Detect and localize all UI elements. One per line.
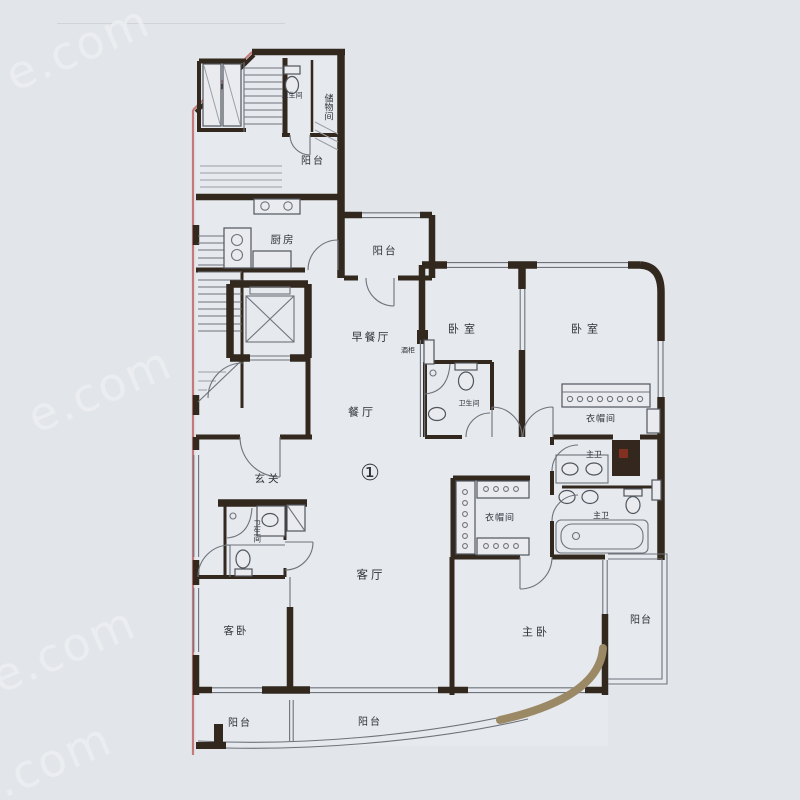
unit-number-badge: ① xyxy=(360,463,380,485)
toilet-tank xyxy=(624,489,642,496)
room-label-bathroom-top: 卫生间 xyxy=(282,93,303,100)
room-label-balcony-kitchen: 阳台 xyxy=(373,246,398,257)
toilet-tank xyxy=(455,363,477,370)
room-label-master-bedroom: 主卧 xyxy=(522,627,550,638)
toilet-tank xyxy=(284,66,300,74)
corner-pier xyxy=(196,742,226,749)
wardrobe xyxy=(477,481,529,498)
shaft-dot xyxy=(619,449,628,458)
toilet-tank xyxy=(235,569,252,576)
wardrobe xyxy=(477,538,529,555)
room-label-breakfast: 早餐厅 xyxy=(352,332,391,343)
kitchen-cabinet xyxy=(253,251,291,268)
room-label-bathroom-foyer: 卫生间 xyxy=(253,520,261,543)
room-label-master-bath-2: 主卫 xyxy=(593,512,609,520)
floor-plan: e.com e.com e.com e.com xyxy=(0,0,800,800)
room-label-living: 客厅 xyxy=(357,569,386,581)
room-label-bedroom-2: 卧室 xyxy=(571,324,603,335)
sink xyxy=(586,463,602,475)
toilet xyxy=(626,497,640,514)
room-label-guest-bedroom: 客卧 xyxy=(224,626,249,637)
wine-cabinet-fixture xyxy=(424,340,434,364)
floor-plan-drawing xyxy=(0,0,800,800)
duct xyxy=(647,409,660,433)
room-label-balcony-bottom-center: 阳台 xyxy=(358,718,382,728)
room-label-master-bath-1: 主卫 xyxy=(586,451,602,459)
toilet xyxy=(459,372,474,390)
room-label-balcony-right: 阳台 xyxy=(630,616,652,626)
wall-niche xyxy=(652,480,661,500)
room-label-wine-cabinet: 酒柜 xyxy=(401,348,415,355)
room-label-foyer: 玄关 xyxy=(255,474,282,485)
wardrobe xyxy=(562,384,650,407)
sink xyxy=(582,491,598,504)
room-label-cloakroom-2: 衣帽间 xyxy=(485,515,515,524)
room-label-balcony-bottom-left: 阳台 xyxy=(228,719,252,729)
room-label-dining: 餐厅 xyxy=(348,407,376,418)
room-label-bedroom-1: 卧室 xyxy=(448,324,480,335)
room-label-cloakroom-1: 衣帽间 xyxy=(586,416,616,425)
room-label-storage: 储物间 xyxy=(323,94,332,121)
room-label-kitchen: 厨房 xyxy=(271,235,296,246)
sink xyxy=(262,514,278,527)
room-label-bathroom-bedroom: 卫生间 xyxy=(459,401,480,408)
sink xyxy=(429,408,446,421)
wardrobe xyxy=(456,481,475,554)
room-label-balcony-top: 阳台 xyxy=(301,157,325,167)
sink xyxy=(562,463,578,475)
toilet xyxy=(236,550,250,568)
